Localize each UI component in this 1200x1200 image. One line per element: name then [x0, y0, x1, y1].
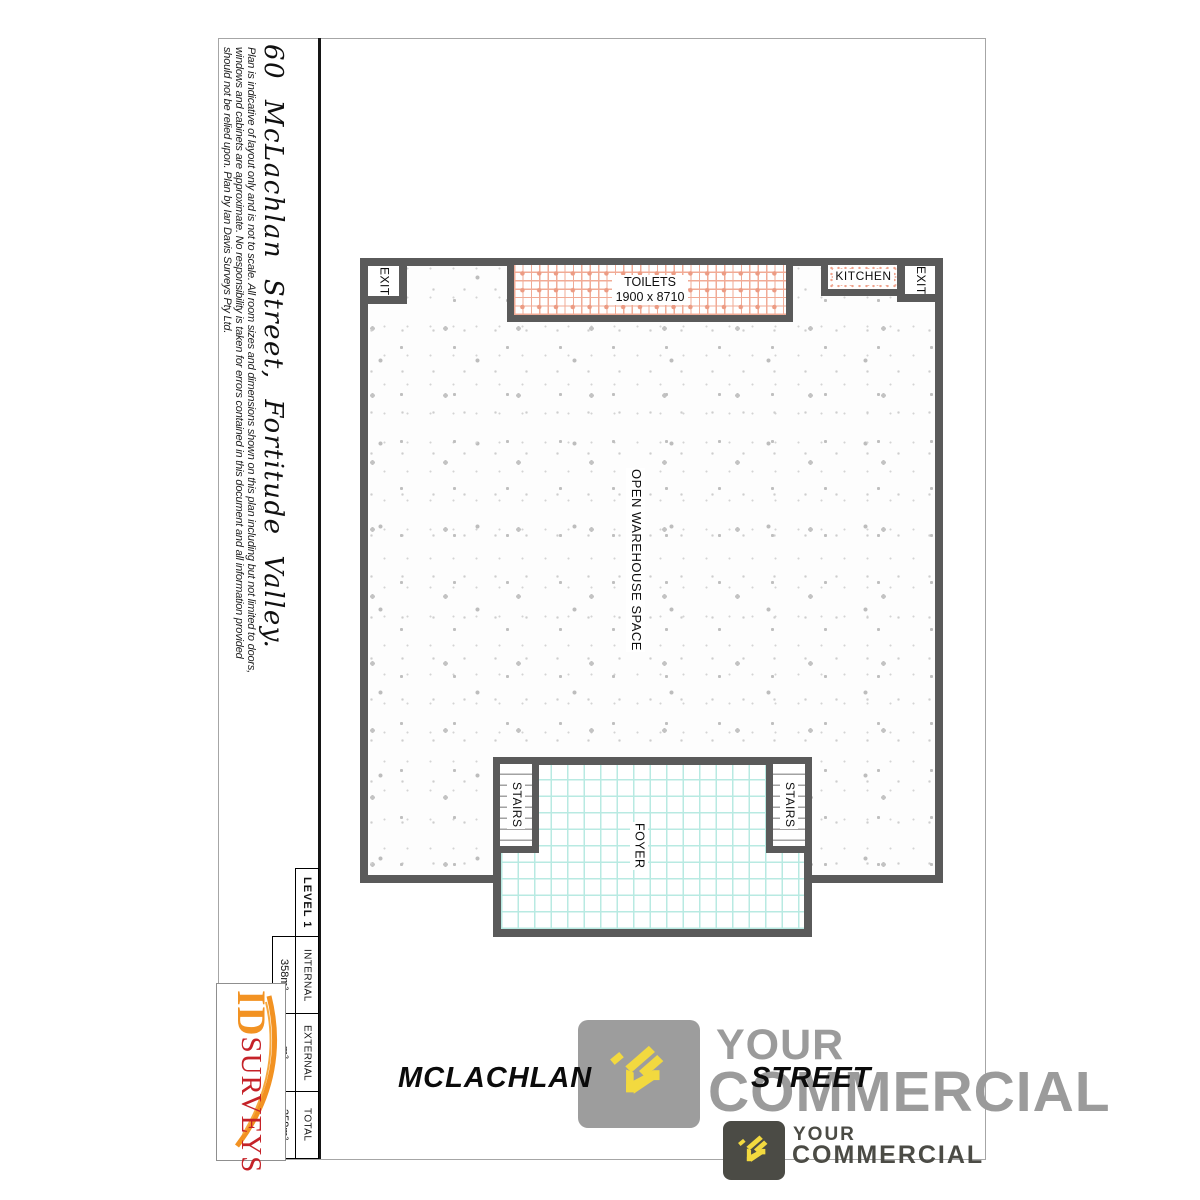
total-label: TOTAL [302, 1108, 313, 1141]
street-name-word2: STREET [751, 1062, 871, 1095]
table-total-cell: TOTAL [295, 1091, 319, 1159]
stairs-room-left: STAIRS [493, 757, 539, 853]
warehouse-label: OPEN WAREHOUSE SPACE [626, 468, 645, 652]
internal-label: INTERNAL [302, 949, 313, 1002]
exit-room-top-right: EXIT [897, 258, 943, 302]
toilets-label-block: TOILETS 1900 x 8710 [612, 275, 689, 305]
stairs-left-label: STAIRS [507, 781, 525, 828]
kitchen-label: KITCHEN [833, 269, 893, 285]
stairs-right-label: STAIRS [780, 781, 798, 828]
disclaimer-line-2: windows and cabinets are approximate. No… [233, 47, 245, 659]
id-surveys-surveys: SURVEYS [235, 1036, 267, 1173]
external-label: EXTERNAL [302, 1025, 313, 1081]
footer-logo-commercial: COMMERCIAL [792, 1141, 984, 1170]
foyer-room [493, 757, 812, 937]
table-external-cell: EXTERNAL [295, 1013, 319, 1092]
toilets-dimensions: 1900 x 8710 [616, 290, 685, 305]
plan-title: 60 McLachlan Street, Fortitude Valley. [258, 44, 288, 649]
street-name-word1: MCLACHLAN [398, 1062, 592, 1095]
table-internal-cell: INTERNAL [295, 936, 319, 1014]
id-surveys-logo: IDSURVEYS [216, 983, 286, 1161]
yc-mark-icon [601, 1036, 677, 1112]
foyer-label: FOYER [630, 822, 648, 870]
id-surveys-wordmark: IDSURVEYS [231, 984, 271, 1160]
disclaimer-line-3: should not be relied upon. Plan by Ian D… [221, 47, 233, 333]
id-surveys-id: ID [229, 990, 274, 1036]
watermark-logo-tile [578, 1020, 700, 1128]
footer-logo-tile [723, 1121, 785, 1180]
disclaimer-line-1: Plan is indicative of layout only and is… [245, 47, 257, 673]
stairs-room-right: STAIRS [766, 757, 812, 853]
toilets-label: TOILETS [616, 275, 685, 290]
exit-top-right-label: EXIT [911, 265, 929, 296]
kitchen-room: KITCHEN [821, 258, 906, 296]
level-label: LEVEL 1 [301, 877, 313, 928]
table-level-header: LEVEL 1 [295, 868, 319, 937]
floorplan-canvas: 60 McLachlan Street, Fortitude Valley. P… [0, 0, 1200, 1200]
yc-mark-icon-small [733, 1130, 775, 1172]
exit-top-left-label: EXIT [375, 266, 393, 297]
toilets-room: TOILETS 1900 x 8710 [507, 258, 793, 322]
exit-room-top-left: EXIT [360, 258, 407, 304]
